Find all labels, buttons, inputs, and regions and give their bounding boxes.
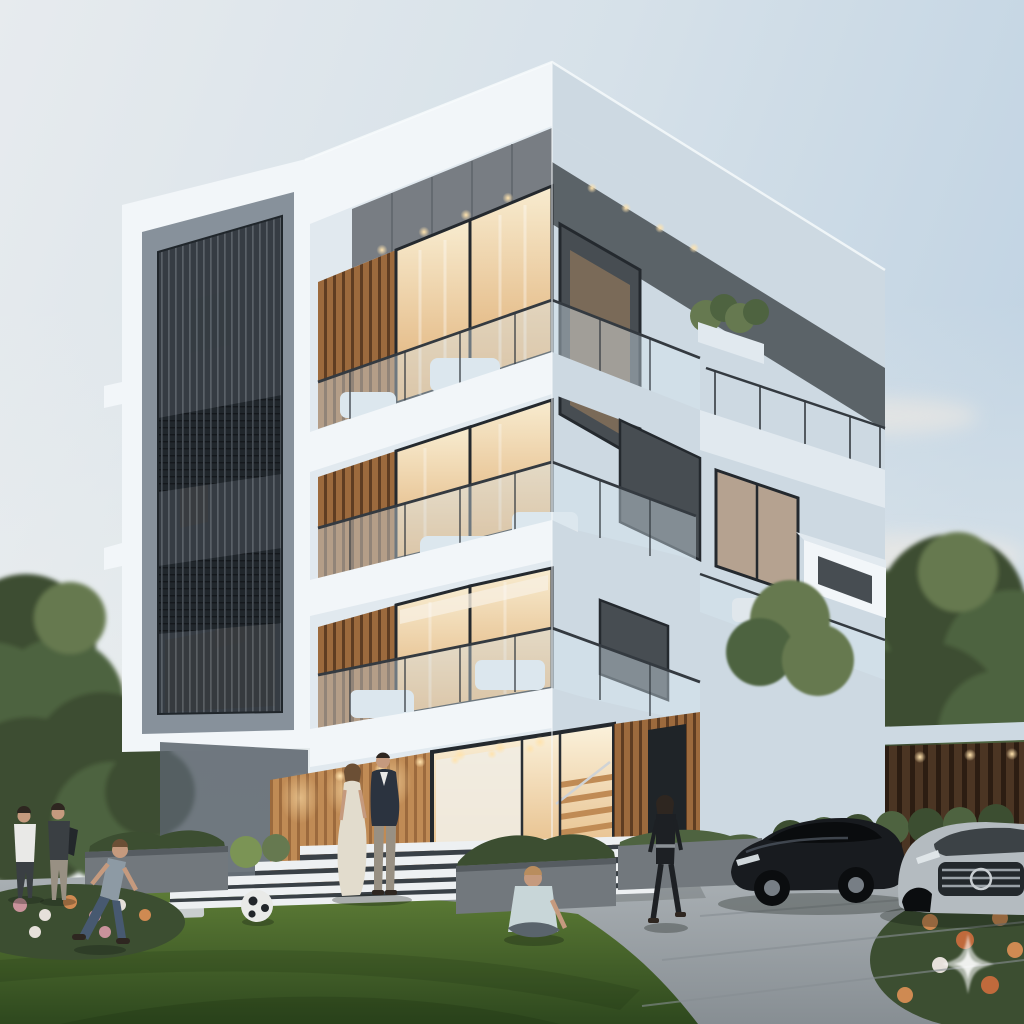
render-stage: [0, 0, 1024, 1024]
screen-bay: [104, 158, 310, 752]
bay-fin-upper: [104, 382, 122, 408]
scene-render: [0, 0, 1024, 1024]
